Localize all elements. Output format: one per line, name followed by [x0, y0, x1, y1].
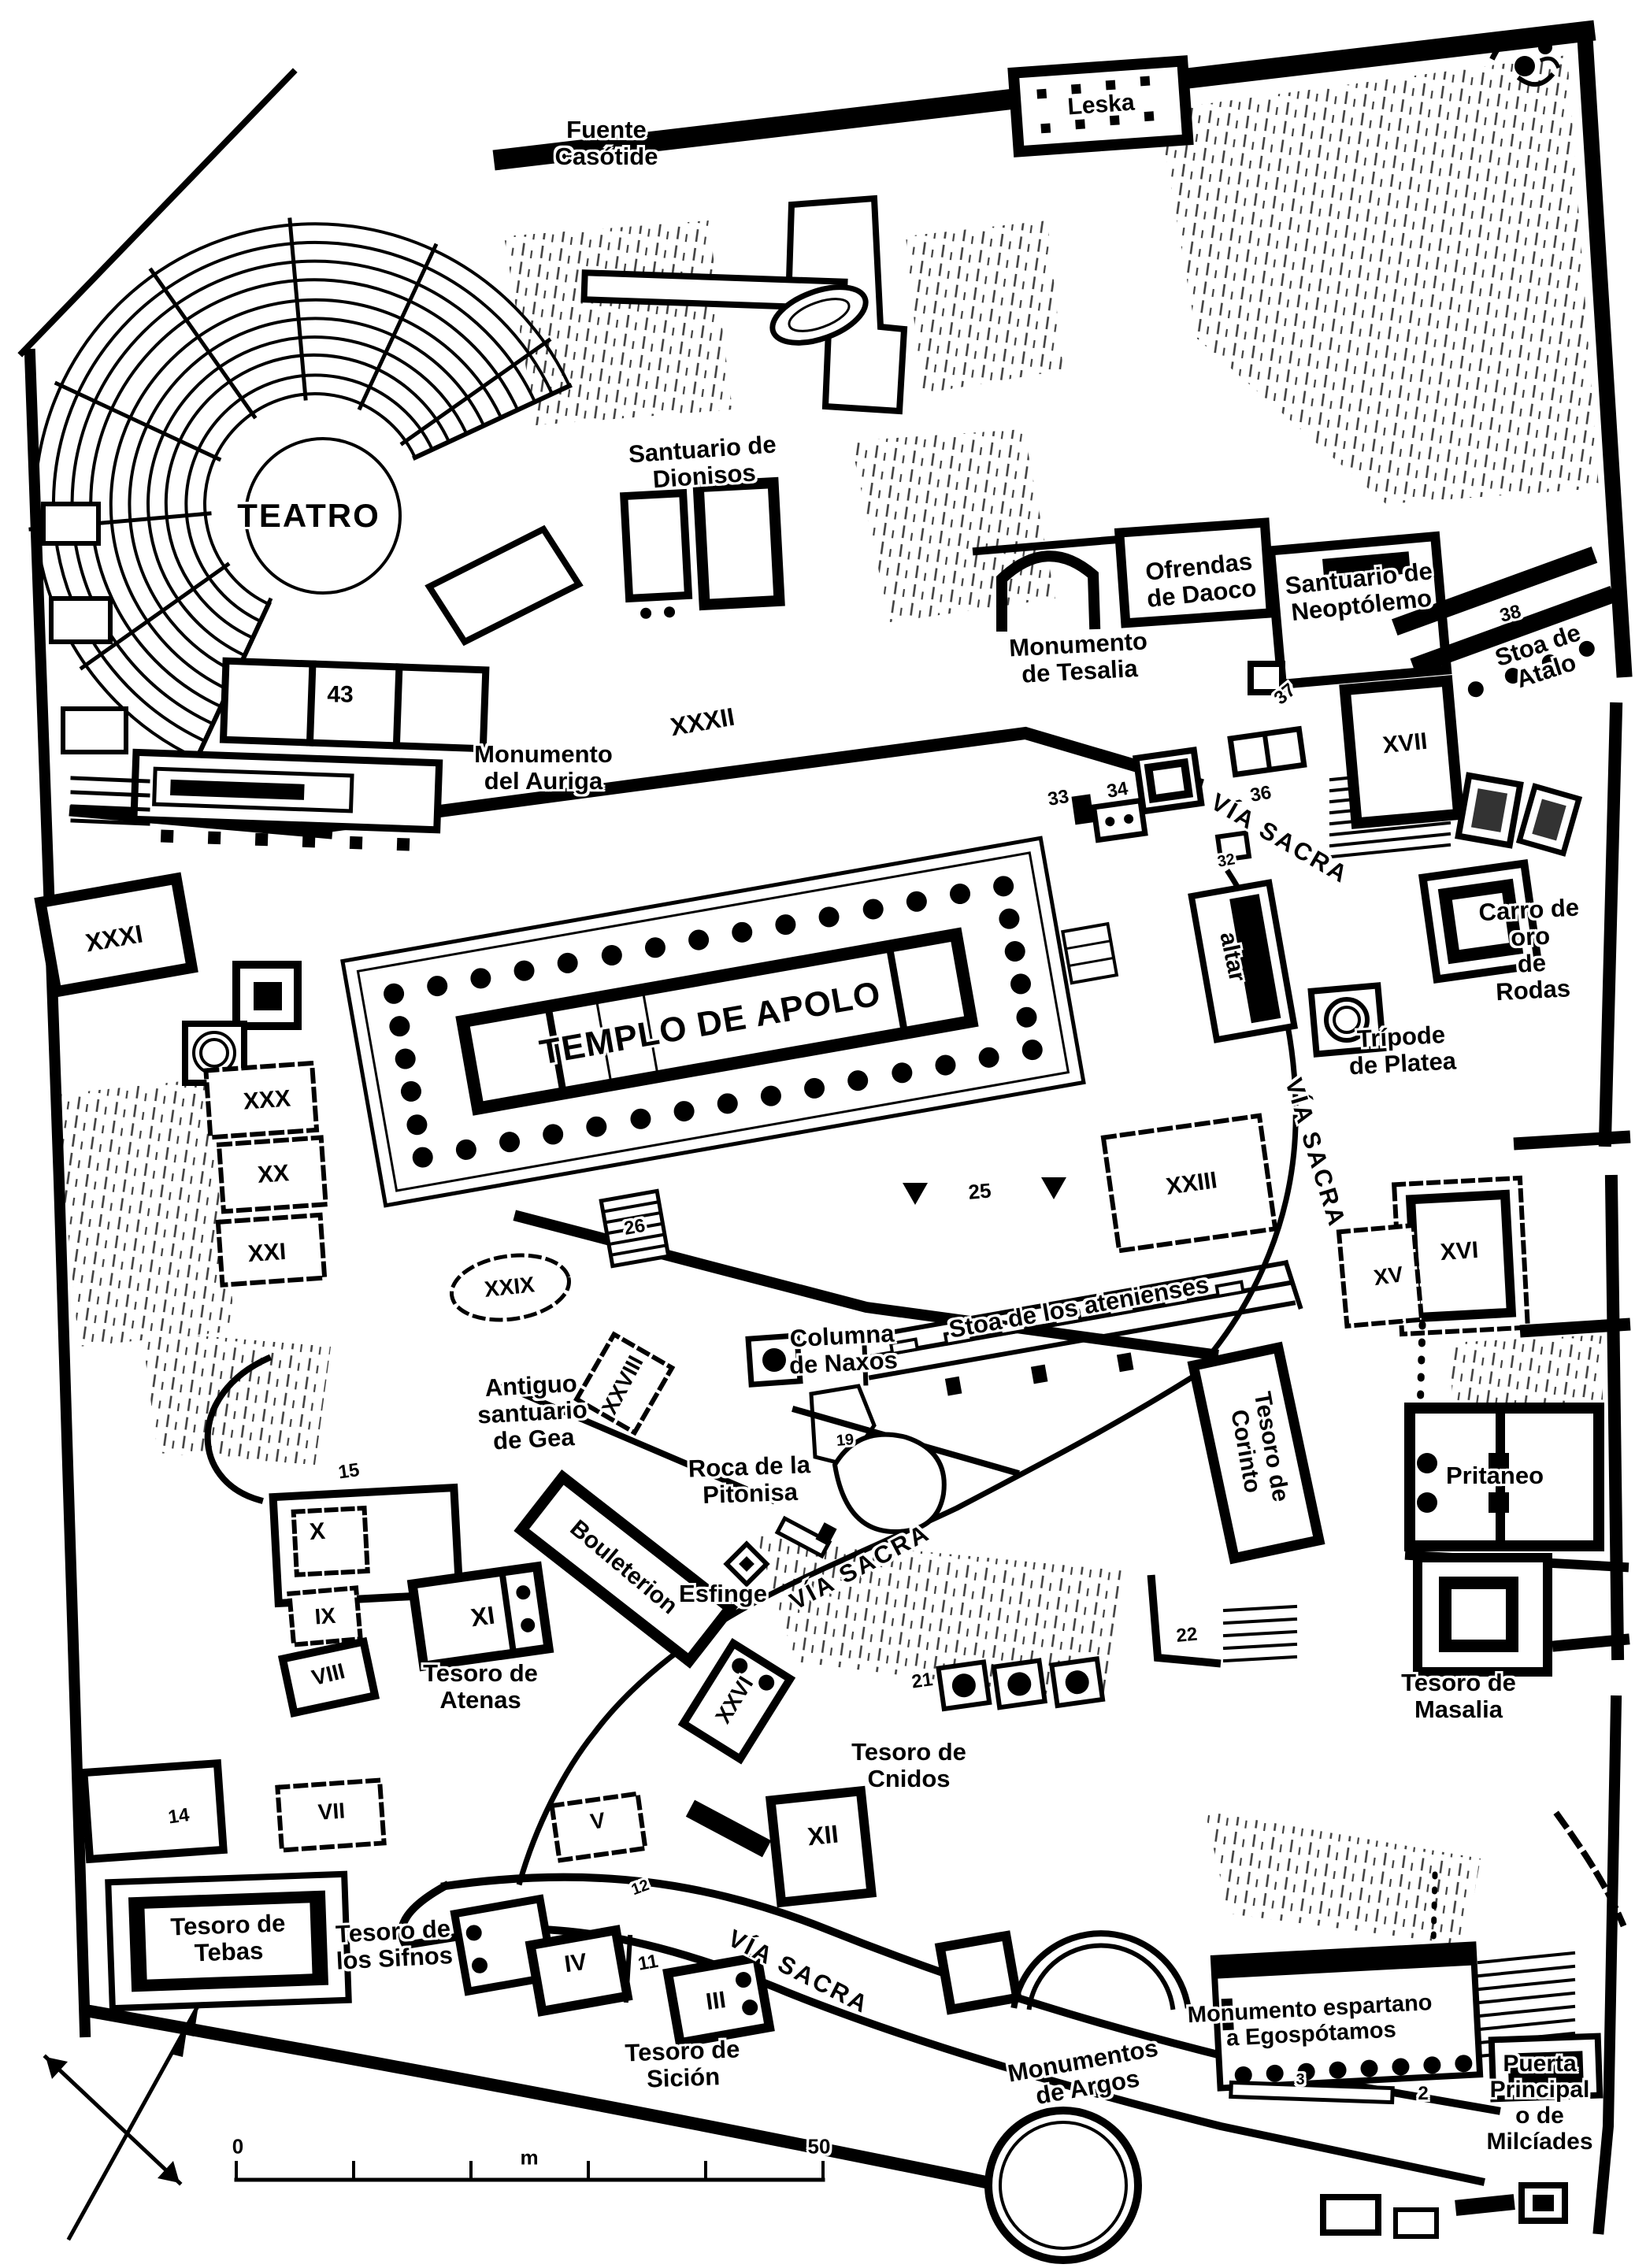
- buildings-xvi-xv: [1339, 1178, 1528, 1334]
- numeral-xxi: XXI: [247, 1239, 287, 1267]
- label-tripode-platea: Trípode de Platea: [1347, 1021, 1457, 1080]
- label-tesoro-sifnos: Tesoro de los Sifnos: [334, 1915, 454, 1975]
- label-tesoro-tebas: Tesoro de Tebas: [170, 1910, 287, 1967]
- numeral-xvi: XVI: [1440, 1237, 1480, 1266]
- numeral-34: 34: [1106, 779, 1130, 803]
- east-hillside-blocks: [1459, 776, 1579, 854]
- numeral-11: 11: [636, 1951, 660, 1975]
- label-esfinge: Esfinge: [679, 1581, 767, 1607]
- santuario-dionisos-buildings: [624, 483, 780, 620]
- numeral-36: 36: [1249, 783, 1274, 807]
- label-monumento-tesalia: Monumento de Tesalia: [1009, 628, 1150, 688]
- numeral-vii: VII: [317, 1799, 346, 1825]
- numeral-14: 14: [167, 1805, 191, 1829]
- numeral-33: 33: [1047, 787, 1071, 811]
- building-xxxi-group: [40, 879, 298, 1083]
- numeral-2: 2: [1418, 2084, 1428, 2104]
- monument-3-bar: [1231, 2082, 1393, 2102]
- numeral-22: 22: [1176, 1625, 1199, 1647]
- numeral-xi: XI: [469, 1601, 497, 1632]
- label-puerta-principal: Puerta Principal o de Milcíades: [1486, 2051, 1592, 2155]
- building-14: [83, 1763, 223, 1859]
- label-columna-naxos: Columna de Naxos: [787, 1320, 898, 1379]
- label-antiguo-gea: Antiguo santuario de Gea: [476, 1369, 590, 1455]
- scale-zero: 0: [232, 2136, 243, 2159]
- numeral-v: V: [589, 1808, 607, 1834]
- scale-unit: m: [520, 2147, 538, 2170]
- label-tesoro-atenas: Tesoro de Atenas: [423, 1660, 538, 1714]
- compass-rose-icon: [46, 2005, 198, 2238]
- label-tesoro-cnidos: Tesoro de Cnidos: [851, 1739, 966, 1792]
- numeral-iii: III: [704, 1987, 727, 2015]
- delphi-site-map: Fuente Casótide Leska TEATRO Santuario d…: [0, 0, 1635, 2268]
- numeral-21: 21: [910, 1669, 934, 1693]
- numeral-xx: XX: [257, 1160, 290, 1188]
- label-tesoro-sicion: Tesoro de Sición: [625, 2036, 741, 2093]
- label-pritaneo: Pritaneo: [1446, 1462, 1544, 1489]
- numeral-15: 15: [337, 1460, 361, 1484]
- label-monumento-auriga: Monumento del Auriga: [474, 741, 613, 795]
- scale-end: 50: [808, 2136, 831, 2159]
- numeral-xxx: XXX: [243, 1085, 291, 1114]
- label-leska: Leska: [1066, 90, 1135, 120]
- numeral-xvii: XVII: [1381, 728, 1429, 759]
- numeral-xv: XV: [1372, 1262, 1404, 1291]
- label-teatro: TEATRO: [237, 498, 380, 534]
- label-fuente-casotide: Fuente Casótide: [555, 117, 658, 170]
- numeral-26: 26: [623, 1216, 647, 1240]
- numeral-x: X: [309, 1518, 326, 1545]
- tesoro-masalia-building: [1418, 1558, 1548, 1672]
- numeral-25: 25: [967, 1179, 992, 1203]
- tesoro-cnidos-building: [686, 1791, 872, 1902]
- bottom-structures: [1323, 2185, 1565, 2236]
- label-carro-oro: Carro de oro de Rodas: [1477, 894, 1586, 1006]
- numeral-19: 19: [836, 1431, 855, 1450]
- label-ofrendas-daoco: Ofrendas de Daoco: [1143, 548, 1258, 613]
- numeral-xii: XII: [806, 1820, 840, 1851]
- label-tesoro-masalia: Tesoro de Masalia: [1401, 1669, 1516, 1723]
- treasuries-sifnos-iv-iii: [454, 1899, 769, 2043]
- label-roca-pitonisa: Roca de la Pitonisa: [688, 1451, 811, 1510]
- numeral-43: 43: [327, 682, 353, 708]
- label-santuario-dionisos: Santuario de Dionisos: [628, 431, 779, 495]
- numeral-iv: IV: [563, 1949, 589, 1978]
- numeral-ix: IX: [314, 1604, 337, 1630]
- numeral-3: 3: [1296, 2071, 1304, 2088]
- numeral-32: 32: [1216, 850, 1236, 871]
